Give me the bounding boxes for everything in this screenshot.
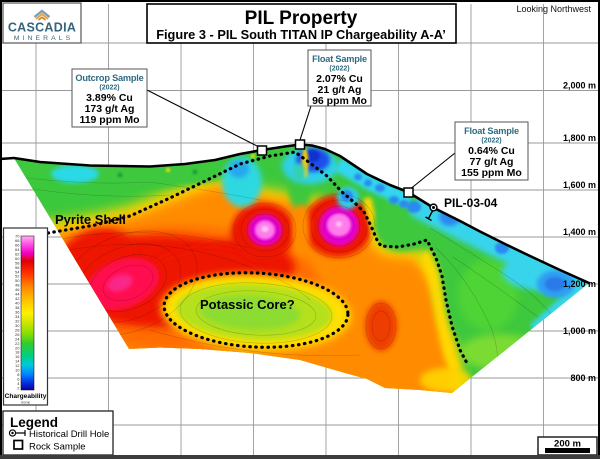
svg-text:none: none — [21, 400, 31, 405]
svg-text:Pyrite Shell: Pyrite Shell — [55, 212, 126, 227]
svg-text:155 ppm Mo: 155 ppm Mo — [461, 167, 522, 179]
svg-text:Float Sample: Float Sample — [312, 54, 367, 64]
svg-text:PIL Property: PIL Property — [245, 8, 358, 29]
svg-text:Outcrop Sample: Outcrop Sample — [75, 73, 143, 83]
svg-text:Figure 3 - PIL South TITAN IP: Figure 3 - PIL South TITAN IP Chargeabil… — [156, 27, 446, 42]
svg-text:1,800 m: 1,800 m — [563, 133, 596, 143]
svg-text:96 ppm Mo: 96 ppm Mo — [312, 95, 367, 107]
svg-text:1,400 m: 1,400 m — [563, 227, 596, 237]
svg-text:Rock Sample: Rock Sample — [29, 442, 86, 453]
svg-text:(2022): (2022) — [329, 66, 349, 73]
svg-text:CASCADIA: CASCADIA — [8, 21, 76, 35]
svg-text:Potassic Core?: Potassic Core? — [200, 297, 295, 312]
svg-text:(2022): (2022) — [99, 85, 119, 92]
svg-text:2,000 m: 2,000 m — [563, 81, 596, 91]
svg-text:Legend: Legend — [10, 415, 58, 430]
svg-text:1,600 m: 1,600 m — [563, 180, 596, 190]
svg-text:Looking Northwest: Looking Northwest — [516, 4, 591, 14]
svg-text:PIL-03-04: PIL-03-04 — [444, 196, 498, 210]
svg-text:Float Sample: Float Sample — [464, 126, 519, 136]
svg-text:1,200 m: 1,200 m — [563, 279, 596, 289]
svg-text:119 ppm Mo: 119 ppm Mo — [79, 114, 139, 126]
svg-text:MINERALS: MINERALS — [14, 35, 74, 42]
svg-text:(2022): (2022) — [481, 138, 501, 145]
svg-text:Historical Drill Hole: Historical Drill Hole — [29, 429, 109, 440]
svg-text:1,000 m: 1,000 m — [563, 326, 596, 336]
svg-text:800 m: 800 m — [570, 373, 596, 383]
svg-text:200 m: 200 m — [554, 439, 581, 450]
